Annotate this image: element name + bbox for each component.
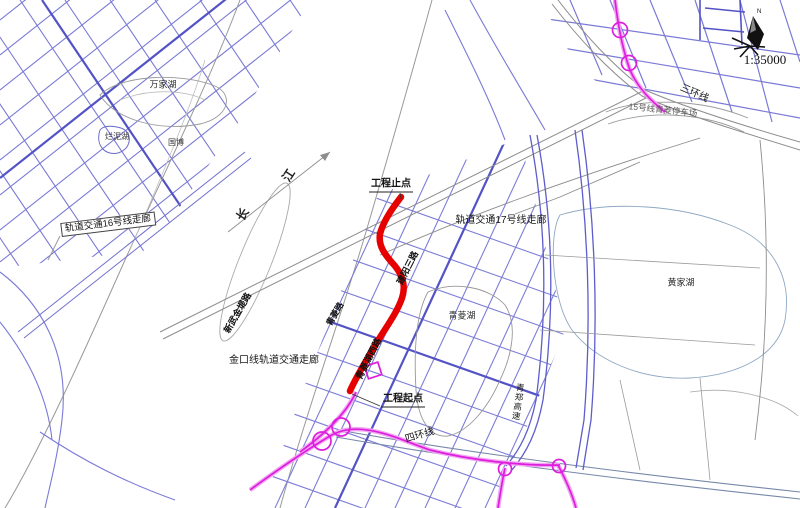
- map-viewport: N 万家湖烂泥湖国博轨道交通16号线走廊长江工程止点轨道交通17号线走廊三环线1…: [0, 0, 800, 508]
- expressway-magenta: [250, 0, 665, 508]
- lake-qingling-outline: [415, 286, 512, 436]
- compass-n-letter: N: [757, 9, 761, 15]
- roads-upper-center: [445, 0, 545, 140]
- map-canvas: N: [0, 0, 800, 508]
- project-route-red: [350, 193, 404, 406]
- shore-southeast: [690, 390, 798, 416]
- scale-label: 1:35000: [729, 52, 800, 68]
- lakes: [99, 77, 798, 436]
- baishazhou-island: [208, 177, 301, 347]
- roads-east: [506, 130, 766, 480]
- rail-corridor-line16: [18, 152, 251, 338]
- roads-southwest: [0, 272, 175, 508]
